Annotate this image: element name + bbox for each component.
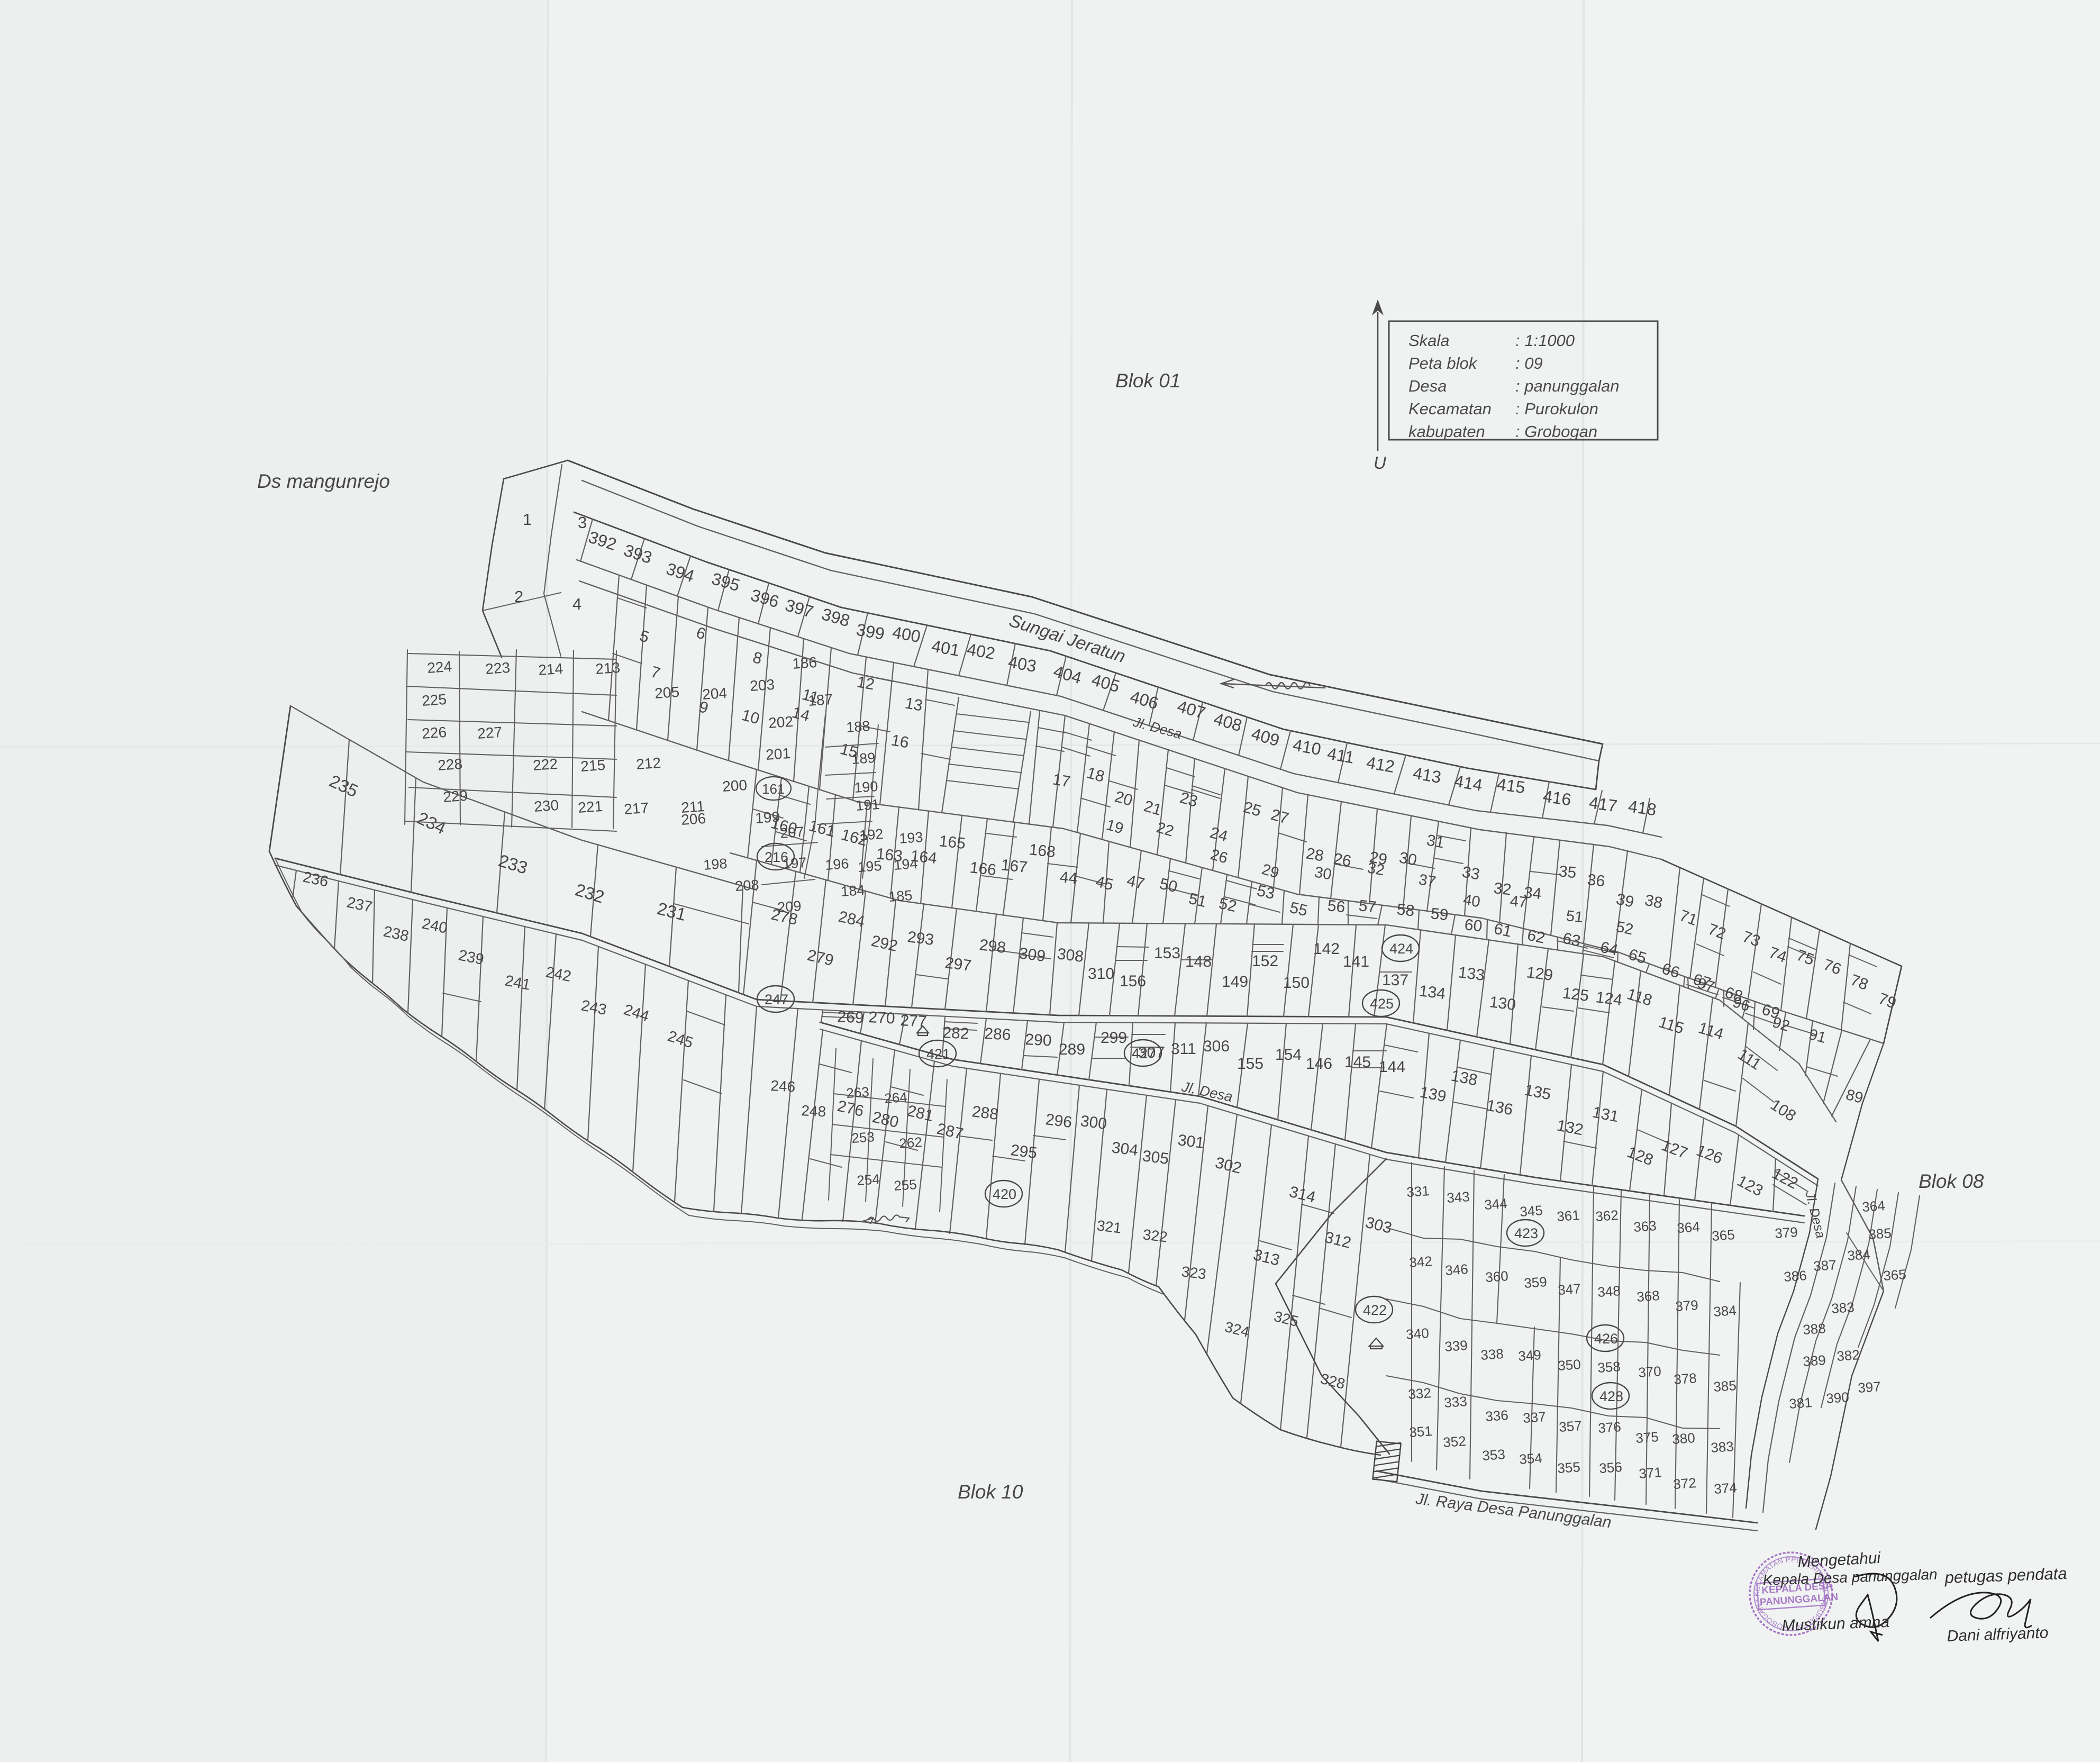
svg-text:38: 38 [1643, 892, 1665, 912]
svg-text:365: 365 [1883, 1266, 1906, 1284]
svg-text:215: 215 [580, 757, 606, 775]
svg-text:255: 255 [893, 1176, 917, 1194]
svg-text:375: 375 [1635, 1429, 1659, 1446]
svg-text:253: 253 [851, 1129, 875, 1146]
svg-text:: Grobogan: : Grobogan [1515, 422, 1597, 441]
svg-text:Ds mangunrejo: Ds mangunrejo [257, 470, 390, 492]
svg-text:124: 124 [1595, 988, 1623, 1009]
svg-text:282: 282 [942, 1024, 970, 1043]
svg-text:56: 56 [1326, 897, 1346, 916]
svg-text:288: 288 [971, 1103, 999, 1123]
svg-text:296: 296 [1044, 1111, 1073, 1131]
svg-text:32: 32 [1493, 879, 1512, 898]
svg-text:189: 189 [851, 750, 876, 767]
svg-text:264: 264 [884, 1089, 907, 1106]
svg-text:340: 340 [1405, 1325, 1429, 1342]
svg-text:379: 379 [1774, 1224, 1798, 1241]
svg-text:202: 202 [768, 713, 794, 731]
svg-text:254: 254 [856, 1171, 880, 1188]
svg-text:348: 348 [1597, 1283, 1621, 1300]
svg-text:kabupaten: kabupaten [1408, 422, 1485, 441]
svg-text:191: 191 [855, 796, 880, 814]
svg-text:270: 270 [868, 1009, 896, 1028]
svg-text:360: 360 [1485, 1268, 1508, 1285]
svg-text:196: 196 [824, 856, 849, 873]
svg-text:44: 44 [1059, 868, 1078, 887]
svg-text:293: 293 [906, 928, 935, 949]
svg-text:194: 194 [893, 856, 918, 873]
svg-text:: 1:1000: : 1:1000 [1515, 331, 1575, 350]
svg-text:165: 165 [938, 832, 966, 852]
svg-text:390: 390 [1825, 1389, 1849, 1406]
svg-text:209: 209 [777, 898, 802, 915]
svg-text:228: 228 [437, 756, 463, 774]
svg-text:148: 148 [1185, 953, 1212, 970]
svg-text:40: 40 [1462, 891, 1481, 911]
svg-text:378: 378 [1673, 1370, 1697, 1387]
svg-text:129: 129 [1525, 964, 1554, 984]
svg-text:47: 47 [1509, 893, 1528, 911]
svg-text:208: 208 [734, 877, 759, 894]
svg-text:188: 188 [846, 718, 870, 735]
svg-text:Peta blok: Peta blok [1408, 354, 1478, 373]
svg-text:368: 368 [1636, 1287, 1660, 1305]
svg-text:416: 416 [1542, 786, 1572, 809]
svg-text:130: 130 [1488, 993, 1517, 1014]
svg-text:: Purokulon: : Purokulon [1515, 399, 1598, 418]
svg-text:262: 262 [898, 1134, 922, 1151]
svg-text:299: 299 [1101, 1029, 1127, 1047]
svg-text:150: 150 [1283, 974, 1310, 992]
svg-text:365: 365 [1711, 1227, 1735, 1244]
svg-text:355: 355 [1557, 1459, 1580, 1476]
svg-text:422: 422 [1363, 1302, 1387, 1318]
svg-text:418: 418 [1627, 796, 1658, 819]
svg-text:134: 134 [1418, 982, 1447, 1003]
svg-text:336: 336 [1485, 1407, 1508, 1424]
svg-text:424: 424 [1389, 941, 1413, 957]
svg-text:195: 195 [857, 858, 882, 875]
svg-text:423: 423 [1514, 1225, 1538, 1241]
svg-text:192: 192 [859, 826, 884, 843]
svg-text:356: 356 [1598, 1459, 1622, 1476]
svg-text:200: 200 [722, 777, 748, 795]
svg-text:347: 347 [1557, 1280, 1581, 1298]
svg-text:343: 343 [1446, 1188, 1470, 1206]
svg-text:161: 161 [762, 781, 785, 797]
svg-text:32: 32 [1366, 859, 1386, 879]
svg-text:383: 383 [1710, 1438, 1734, 1456]
svg-text:217: 217 [623, 800, 649, 818]
svg-text:141: 141 [1343, 953, 1369, 970]
svg-text:229: 229 [442, 787, 468, 805]
svg-text:363: 363 [1633, 1218, 1657, 1235]
svg-text:386: 386 [1783, 1267, 1807, 1285]
svg-text:333: 333 [1443, 1393, 1467, 1411]
svg-text:224: 224 [426, 658, 452, 676]
svg-text:187: 187 [807, 691, 833, 709]
svg-text:346: 346 [1444, 1261, 1468, 1278]
svg-text:384: 384 [1847, 1246, 1870, 1264]
svg-text:308: 308 [1056, 945, 1085, 966]
svg-text:298: 298 [978, 936, 1007, 957]
svg-text:Blok 08: Blok 08 [1919, 1170, 1984, 1192]
svg-text:247: 247 [765, 992, 788, 1007]
svg-text:331: 331 [1406, 1183, 1430, 1200]
svg-text:51: 51 [1565, 907, 1584, 926]
svg-text:137: 137 [1382, 971, 1408, 989]
svg-text:306: 306 [1203, 1038, 1230, 1055]
svg-text:216: 216 [765, 849, 788, 865]
svg-text:213: 213 [595, 659, 621, 677]
svg-text:3: 3 [578, 513, 587, 532]
svg-text:31: 31 [1425, 831, 1446, 851]
svg-text:186: 186 [792, 654, 817, 672]
svg-text:304: 304 [1111, 1139, 1139, 1159]
svg-text:30: 30 [1398, 849, 1419, 869]
svg-text:149: 149 [1222, 973, 1248, 991]
svg-text:380: 380 [1671, 1430, 1695, 1447]
svg-text:212: 212 [635, 755, 661, 773]
svg-text:297: 297 [944, 954, 972, 975]
svg-text:364: 364 [1676, 1219, 1700, 1236]
svg-text:Blok 10: Blok 10 [958, 1481, 1023, 1503]
svg-text:12: 12 [856, 673, 876, 693]
svg-text:199: 199 [754, 809, 780, 826]
svg-text:: 09: : 09 [1515, 354, 1543, 373]
svg-text:381: 381 [1788, 1394, 1812, 1412]
svg-text:61: 61 [1493, 920, 1514, 941]
svg-text:125: 125 [1561, 984, 1590, 1005]
svg-text:U: U [1374, 453, 1386, 473]
svg-text:203: 203 [749, 676, 775, 694]
svg-text:1: 1 [523, 510, 532, 529]
svg-text:225: 225 [421, 691, 447, 709]
svg-text:339: 339 [1444, 1337, 1468, 1355]
svg-text:421: 421 [926, 1046, 950, 1062]
svg-text:201: 201 [765, 745, 791, 763]
svg-text:263: 263 [846, 1084, 869, 1101]
svg-text:Blok 01: Blok 01 [1115, 370, 1180, 392]
svg-text:13: 13 [904, 694, 924, 714]
svg-text:222: 222 [532, 756, 558, 774]
svg-text:321: 321 [1096, 1217, 1122, 1236]
svg-text:Kecamatan: Kecamatan [1408, 399, 1492, 418]
svg-text:361: 361 [1556, 1207, 1580, 1224]
svg-text:277: 277 [900, 1012, 928, 1031]
svg-text:168: 168 [1028, 841, 1056, 861]
svg-text:Skala: Skala [1408, 331, 1450, 350]
svg-text:397: 397 [1857, 1378, 1881, 1396]
svg-text:289: 289 [1059, 1041, 1085, 1058]
svg-text:387: 387 [1813, 1257, 1837, 1274]
svg-text:37: 37 [1417, 871, 1437, 891]
svg-text:415: 415 [1496, 774, 1526, 797]
svg-text:332: 332 [1407, 1385, 1431, 1402]
svg-text:385: 385 [1713, 1377, 1737, 1395]
svg-text:221: 221 [577, 798, 603, 816]
svg-text:354: 354 [1519, 1450, 1542, 1467]
svg-text:379: 379 [1675, 1297, 1698, 1314]
svg-text:337: 337 [1522, 1409, 1546, 1426]
svg-text:385: 385 [1868, 1225, 1892, 1242]
svg-text:388: 388 [1802, 1320, 1826, 1338]
svg-text:428: 428 [1599, 1388, 1623, 1404]
svg-text:205: 205 [654, 684, 680, 702]
svg-text:427: 427 [1132, 1046, 1156, 1061]
svg-text:246: 246 [770, 1077, 796, 1095]
svg-text:426: 426 [1594, 1331, 1618, 1347]
svg-text:420: 420 [993, 1186, 1016, 1202]
svg-text:185: 185 [888, 887, 913, 905]
svg-text:62: 62 [1526, 927, 1547, 947]
svg-text:39: 39 [1615, 891, 1636, 911]
svg-text:190: 190 [853, 778, 878, 796]
svg-text:227: 227 [477, 724, 503, 742]
svg-text:349: 349 [1517, 1347, 1541, 1364]
svg-text:301: 301 [1177, 1131, 1205, 1152]
svg-text:Desa: Desa [1408, 377, 1447, 395]
svg-text:417: 417 [1588, 793, 1619, 815]
svg-text:358: 358 [1597, 1358, 1621, 1376]
svg-text:207: 207 [779, 824, 804, 841]
svg-text:35: 35 [1558, 862, 1577, 882]
svg-text:214: 214 [538, 660, 563, 678]
svg-text:206: 206 [680, 810, 706, 828]
svg-text:193: 193 [898, 829, 923, 847]
svg-text:152: 152 [1252, 952, 1278, 970]
svg-text:323: 323 [1180, 1263, 1207, 1282]
svg-text:64: 64 [1599, 939, 1620, 959]
svg-text:383: 383 [1831, 1299, 1854, 1316]
svg-text:4: 4 [572, 595, 581, 613]
svg-text:376: 376 [1597, 1419, 1621, 1436]
svg-text:372: 372 [1672, 1475, 1696, 1492]
svg-text:: panunggalan: : panunggalan [1515, 377, 1620, 395]
svg-text:305: 305 [1141, 1147, 1170, 1168]
svg-text:2: 2 [514, 587, 523, 606]
svg-text:58: 58 [1396, 901, 1415, 920]
svg-text:154: 154 [1275, 1046, 1302, 1064]
svg-text:145: 145 [1344, 1053, 1371, 1071]
svg-text:166: 166 [969, 859, 997, 879]
svg-text:204: 204 [702, 685, 728, 703]
svg-text:290: 290 [1025, 1031, 1052, 1050]
svg-text:146: 146 [1306, 1055, 1332, 1073]
svg-text:144: 144 [1379, 1058, 1405, 1076]
svg-text:309: 309 [1018, 944, 1047, 965]
svg-text:311: 311 [1171, 1040, 1196, 1058]
svg-text:52: 52 [1615, 919, 1635, 939]
svg-text:28: 28 [1305, 844, 1325, 865]
svg-text:226: 226 [421, 724, 447, 742]
svg-text:16: 16 [890, 731, 911, 751]
svg-text:230: 230 [533, 797, 559, 815]
svg-text:60: 60 [1463, 916, 1483, 935]
svg-text:370: 370 [1638, 1363, 1661, 1380]
svg-text:338: 338 [1480, 1346, 1504, 1363]
svg-text:342: 342 [1408, 1253, 1432, 1270]
svg-text:382: 382 [1836, 1347, 1860, 1364]
svg-text:357: 357 [1558, 1418, 1582, 1435]
svg-text:345: 345 [1519, 1202, 1543, 1220]
svg-text:362: 362 [1595, 1207, 1619, 1224]
svg-text:142: 142 [1313, 940, 1340, 958]
svg-text:30: 30 [1313, 864, 1333, 883]
svg-text:59: 59 [1430, 905, 1449, 924]
svg-text:351: 351 [1408, 1423, 1432, 1440]
svg-text:167: 167 [1000, 856, 1028, 876]
svg-text:184: 184 [840, 882, 865, 900]
svg-text:353: 353 [1481, 1446, 1505, 1464]
svg-text:156: 156 [1120, 973, 1146, 990]
svg-text:300: 300 [1079, 1112, 1108, 1133]
svg-text:248: 248 [801, 1102, 826, 1120]
svg-text:155: 155 [1237, 1055, 1263, 1073]
svg-text:322: 322 [1142, 1226, 1168, 1245]
svg-text:344: 344 [1484, 1195, 1507, 1213]
svg-text:26: 26 [1332, 850, 1353, 870]
svg-text:17: 17 [1051, 770, 1072, 791]
svg-text:352: 352 [1442, 1433, 1466, 1450]
svg-text:57: 57 [1358, 897, 1377, 916]
svg-text:364: 364 [1861, 1197, 1885, 1215]
svg-text:153: 153 [1154, 944, 1180, 962]
svg-text:425: 425 [1370, 996, 1394, 1012]
svg-text:384: 384 [1713, 1302, 1737, 1320]
svg-text:350: 350 [1557, 1356, 1581, 1374]
svg-text:133: 133 [1457, 964, 1486, 984]
svg-text:286: 286 [984, 1025, 1012, 1044]
svg-text:33: 33 [1461, 863, 1481, 883]
svg-text:36: 36 [1586, 871, 1606, 890]
svg-text:295: 295 [1010, 1141, 1038, 1162]
svg-text:374: 374 [1713, 1479, 1737, 1497]
svg-text:310: 310 [1088, 965, 1114, 983]
svg-text:Dani alfriyanto: Dani alfriyanto [1947, 1624, 2049, 1645]
svg-text:359: 359 [1523, 1274, 1547, 1291]
svg-text:198: 198 [703, 856, 728, 873]
svg-text:371: 371 [1638, 1464, 1662, 1482]
svg-text:389: 389 [1802, 1352, 1826, 1369]
svg-text:223: 223 [485, 659, 511, 677]
svg-text:269: 269 [837, 1008, 865, 1027]
svg-text:63: 63 [1561, 930, 1583, 950]
